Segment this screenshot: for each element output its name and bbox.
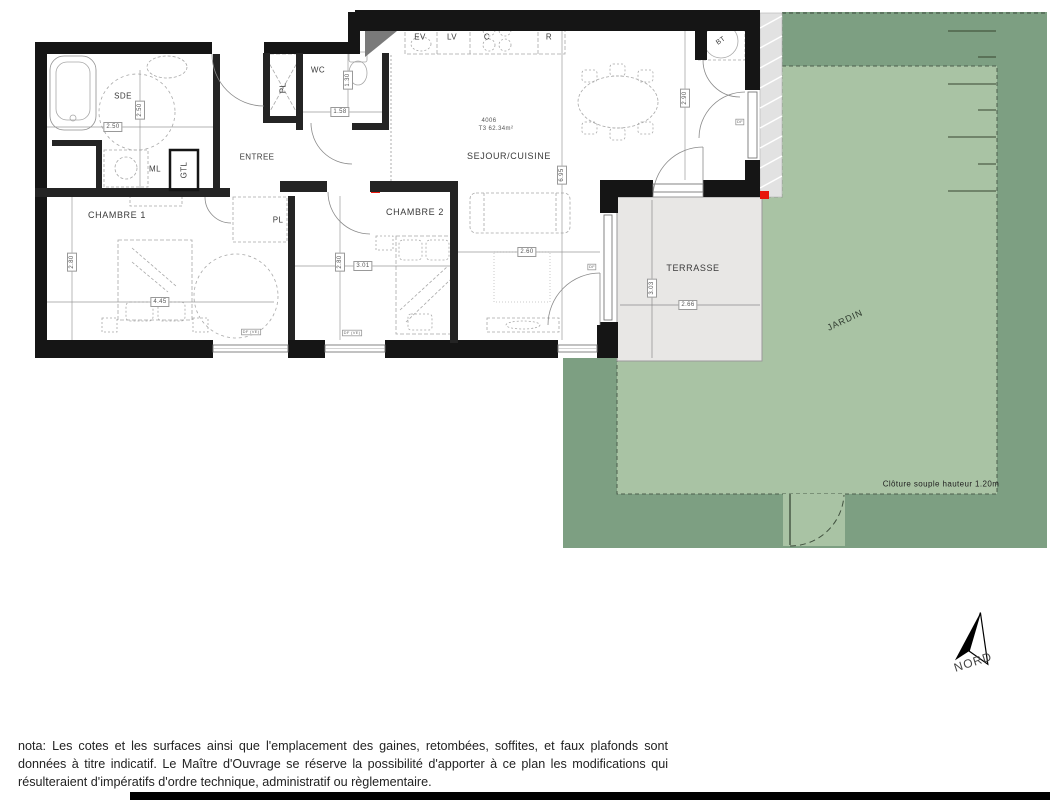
room-label-sde: SDE <box>114 92 132 101</box>
window-label-chambre2: DF (VE) <box>342 330 362 336</box>
fixture-label-ml: ML <box>149 165 161 174</box>
dim-chambre1-width: 4.45 <box>150 297 169 307</box>
dim-sde-width: 2.50 <box>103 122 122 132</box>
floor-plan-page: SDE WC ENTREE ML GTL PL PL CHAMBRE 1 CHA… <box>0 0 1061 800</box>
dim-sejour-width: 2.60 <box>517 247 536 257</box>
dim-terrasse-width: 2.66 <box>678 300 697 310</box>
dim-terrasse-height: 3.03 <box>647 278 657 297</box>
nota-text: nota: Les cotes et les surfaces ainsi qu… <box>18 737 668 791</box>
closet-label-pl-entree: PL <box>279 83 288 94</box>
fence-note: Clôture souple hauteur 1.20m <box>883 480 1000 489</box>
apartment-number: 4006 <box>482 118 497 124</box>
dim-wc-height: 1.30 <box>343 70 353 89</box>
dimension-lines <box>47 31 685 340</box>
fixture-label-gtl: GTL <box>180 162 189 179</box>
window-label-chambre1: DF (VE) <box>241 329 261 335</box>
kitchen-label-ev: EV <box>414 33 425 42</box>
hatched-strip <box>760 13 782 197</box>
dim-sde-height: 2.50 <box>135 100 145 119</box>
dim-chambre2-height: 2.80 <box>335 252 345 271</box>
room-label-wc: WC <box>311 66 325 75</box>
room-label-entree: ENTREE <box>240 153 275 162</box>
room-label-sejour-cuisine: SEJOUR/CUISINE <box>467 151 551 161</box>
dim-chambre1-height: 2.80 <box>67 252 77 271</box>
kitchen-label-lv: LV <box>447 33 457 42</box>
room-label-terrasse: TERRASSE <box>666 263 719 273</box>
room-label-chambre2: CHAMBRE 2 <box>386 207 444 217</box>
dim-sejour-height: 6.95 <box>557 165 567 184</box>
kitchen-label-r: R <box>546 33 552 42</box>
dim-chambre2-width: 3.01 <box>353 261 372 271</box>
apartment-type-area: T3 62.34m² <box>479 126 514 132</box>
dim-wc-width: 1.58 <box>330 107 349 117</box>
closet-label-pl-chambre1: PL <box>273 216 284 225</box>
dim-sejour-right-height: 2.90 <box>680 88 690 107</box>
kitchen-label-c: C <box>484 33 490 42</box>
red-marker-terrace <box>760 191 769 199</box>
window-label-right-wall: DF <box>735 119 744 125</box>
room-label-chambre1: CHAMBRE 1 <box>88 210 146 220</box>
terrace <box>617 197 762 361</box>
bottom-black-bar <box>130 792 1050 800</box>
floor-plan-drawing <box>0 0 1061 800</box>
window-label-terrace-door: DF <box>587 264 596 270</box>
